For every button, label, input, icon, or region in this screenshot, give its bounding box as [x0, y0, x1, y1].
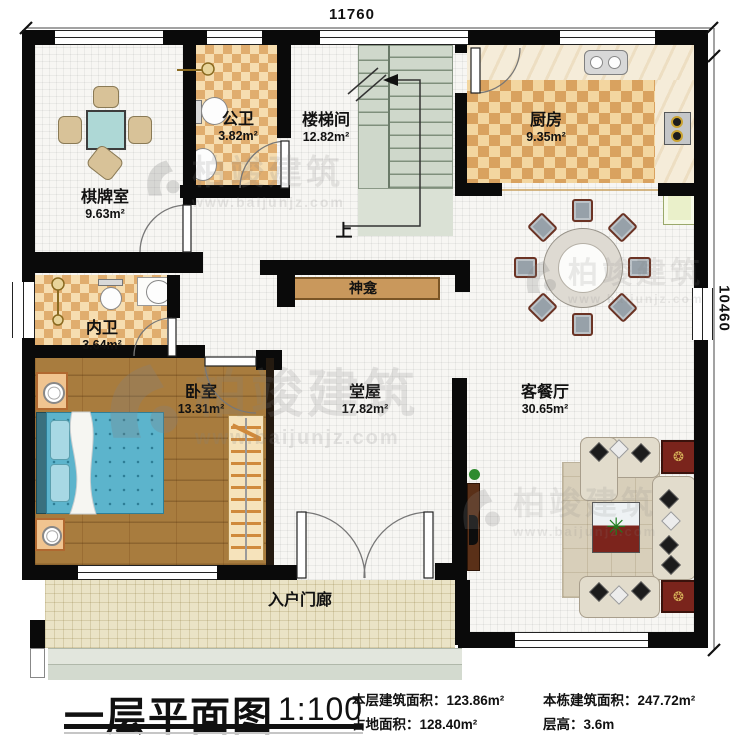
- room-label-porch: 入户门廊: [268, 592, 332, 610]
- plan-overlay: [0, 0, 750, 744]
- room-area: 17.82m²: [342, 402, 389, 416]
- room-name: 客餐厅: [521, 384, 569, 402]
- room-name: 入户门廊: [268, 592, 332, 610]
- shower-head-icon: [52, 63, 214, 325]
- room-name: 公卫: [218, 111, 258, 129]
- room-label-public-bath: 公卫 3.82m²: [218, 111, 258, 143]
- stair-break-line: [348, 68, 386, 101]
- room-name: 堂屋: [342, 384, 389, 402]
- room-label-stairwell: 楼梯间 12.82m²: [302, 112, 350, 144]
- room-label-private-bath: 内卫 3.64m²: [82, 320, 122, 352]
- dimension-ticks: [20, 22, 720, 656]
- room-name: 楼梯间: [302, 112, 350, 130]
- shrine-label: 神龛: [349, 278, 377, 298]
- room-name: 内卫: [82, 320, 122, 338]
- room-name: 厨房: [526, 112, 566, 130]
- room-area: 12.82m²: [302, 130, 350, 144]
- bed-sheet-fold: [70, 412, 96, 514]
- room-label-living-dining: 客餐厅 30.65m²: [521, 384, 569, 416]
- dimension-lines: [26, 28, 714, 650]
- room-label-kitchen: 厨房 9.35m²: [526, 112, 566, 144]
- room-name: 卧室: [178, 384, 225, 402]
- room-area: 9.35m²: [526, 130, 566, 144]
- room-area: 9.63m²: [81, 207, 129, 221]
- room-label-game-room: 棋牌室 9.63m²: [81, 189, 129, 221]
- stairs-up-label: 上: [336, 217, 353, 242]
- room-label-main-hall: 堂屋 17.82m²: [342, 384, 389, 416]
- room-name: 棋牌室: [81, 189, 129, 207]
- room-area: 13.31m²: [178, 402, 225, 416]
- floor-plan-canvas: ✳ ❂ ❂: [0, 0, 750, 744]
- room-area: 3.82m²: [218, 129, 258, 143]
- room-area: 30.65m²: [521, 402, 569, 416]
- room-area: 3.64m²: [82, 338, 122, 352]
- stair-up-arrow: [344, 74, 420, 226]
- room-label-bedroom: 卧室 13.31m²: [178, 384, 225, 416]
